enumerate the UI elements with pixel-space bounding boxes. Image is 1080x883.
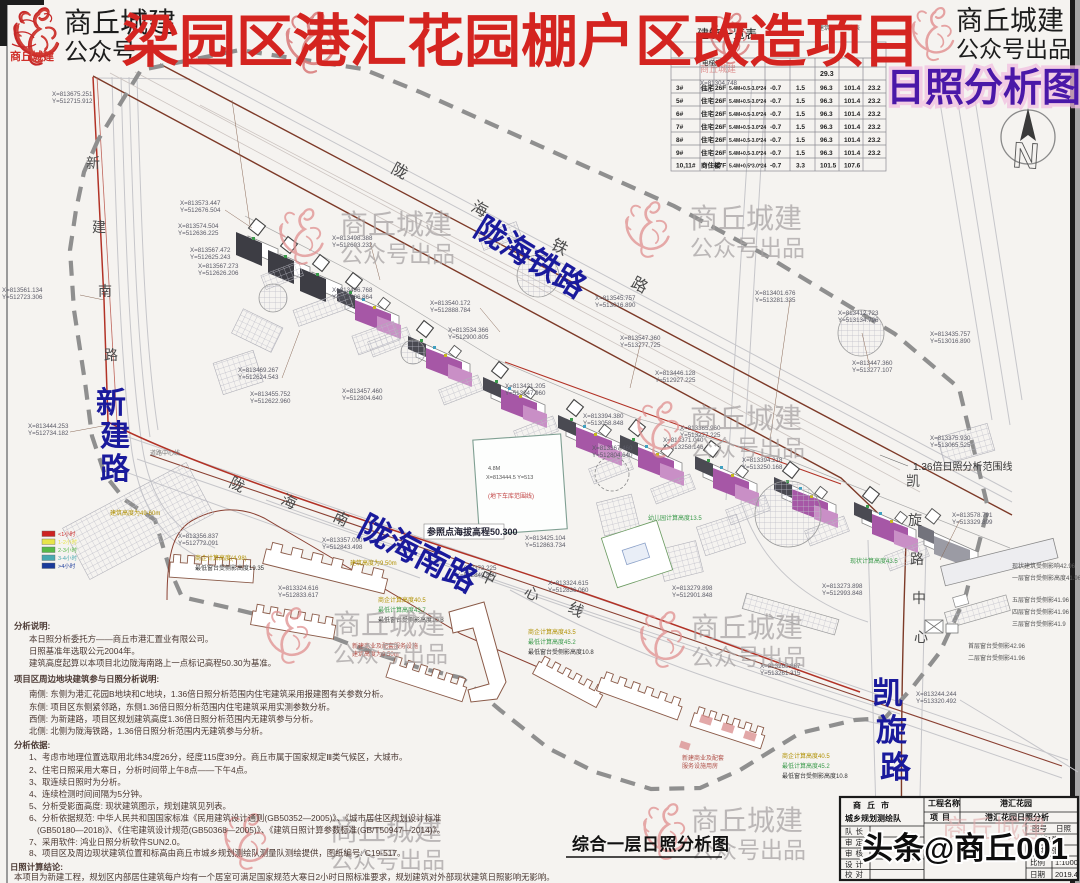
svg-text:校对: 校对 bbox=[845, 869, 866, 879]
svg-text:商丘城建: 商丘城建 bbox=[691, 612, 803, 643]
svg-text:2、住宅日照采用大寒日，分析时间带上午8点——下午4点。: 2、住宅日照采用大寒日，分析时间带上午8点——下午4点。 bbox=[29, 765, 252, 775]
svg-text:城乡规划测绘队: 城乡规划测绘队 bbox=[845, 813, 902, 823]
svg-text:-0.7: -0.7 bbox=[770, 150, 782, 157]
svg-text:5.4M+0.5-3.0*24: 5.4M+0.5-3.0*24 bbox=[729, 151, 766, 157]
svg-text:分析依据:: 分析依据: bbox=[14, 740, 50, 750]
svg-text:3-4小时: 3-4小时 bbox=[58, 554, 77, 562]
svg-text:心: 心 bbox=[521, 583, 542, 605]
svg-text:住宅: 住宅 bbox=[701, 96, 715, 105]
svg-text:26F: 26F bbox=[715, 150, 726, 157]
svg-text:9#: 9# bbox=[676, 150, 684, 157]
svg-text:路: 路 bbox=[628, 274, 651, 297]
svg-text:(GB50180—2018)》、《住宅建筑设计规范(GB50: (GB50180—2018)》、《住宅建筑设计规范(GB50368—2005)》… bbox=[37, 825, 445, 835]
svg-text:101.4: 101.4 bbox=[844, 124, 861, 131]
svg-text:公众号出品: 公众号出品 bbox=[333, 641, 448, 667]
svg-text:-0.7: -0.7 bbox=[770, 85, 782, 92]
svg-text:101.4: 101.4 bbox=[844, 111, 861, 118]
svg-text:27F: 27F bbox=[715, 163, 726, 170]
svg-text:26F: 26F bbox=[715, 137, 726, 144]
svg-text:公众号出品: 公众号出品 bbox=[690, 235, 805, 261]
svg-text:96.3: 96.3 bbox=[820, 98, 833, 105]
svg-text:商丘城建: 商丘城建 bbox=[333, 609, 445, 640]
svg-text:26F: 26F bbox=[715, 111, 726, 118]
svg-text:>4小时: >4小时 bbox=[58, 562, 76, 570]
svg-text:10,11#: 10,11# bbox=[676, 163, 696, 170]
svg-text:23.2: 23.2 bbox=[868, 85, 881, 92]
svg-text:商丘城建: 商丘城建 bbox=[690, 403, 802, 434]
svg-text:26F: 26F bbox=[715, 85, 726, 92]
svg-text:陇海南路: 陇海南路 bbox=[353, 508, 484, 599]
svg-text:96.3: 96.3 bbox=[820, 111, 833, 118]
svg-text:路: 路 bbox=[104, 347, 118, 363]
svg-text:新: 新 bbox=[86, 155, 100, 171]
svg-text:96.3: 96.3 bbox=[820, 137, 833, 144]
svg-text:海: 海 bbox=[278, 491, 299, 513]
svg-text:5、分析受影面高度: 现状建筑图示，规划建筑见列表。: 5、分析受影面高度: 现状建筑图示，规划建筑见列表。 bbox=[29, 801, 231, 811]
svg-text:-0.7: -0.7 bbox=[770, 98, 782, 105]
svg-text:日期: 日期 bbox=[1030, 870, 1045, 879]
svg-text:-0.7: -0.7 bbox=[770, 111, 782, 118]
svg-text:日照分析图: 日照分析图 bbox=[886, 67, 1080, 110]
svg-text:凯: 凯 bbox=[906, 473, 920, 489]
svg-text:公众号出品: 公众号出品 bbox=[340, 241, 455, 267]
svg-text:商丘城建: 商丘城建 bbox=[690, 203, 802, 234]
svg-text:建: 建 bbox=[92, 219, 106, 235]
svg-text:1.5: 1.5 bbox=[796, 85, 805, 92]
svg-text:5.4M+0.5-3.0*24: 5.4M+0.5-3.0*24 bbox=[729, 99, 766, 105]
svg-text:<1小时: <1小时 bbox=[58, 530, 76, 538]
svg-text:商丘市: 商丘市 bbox=[853, 800, 895, 810]
svg-text:住宅: 住宅 bbox=[701, 148, 715, 157]
svg-text:路: 路 bbox=[880, 750, 912, 785]
svg-text:1、考虑市地理位置选取用北纬34度26分，经度115度39分: 1、考虑市地理位置选取用北纬34度26分，经度115度39分。商丘市属于国家规定… bbox=[29, 752, 407, 762]
svg-text:工程名称: 工程名称 bbox=[928, 798, 960, 808]
svg-text:107.6: 107.6 bbox=[844, 163, 861, 170]
svg-text:5.4M+0.5-3.0*24: 5.4M+0.5-3.0*24 bbox=[729, 125, 766, 131]
svg-text:1.5: 1.5 bbox=[796, 98, 805, 105]
svg-text:新: 新 bbox=[96, 387, 126, 420]
svg-text:本项目为新建工程，规划区内部居住建筑每户均有一个居室可满足国: 本项目为新建工程，规划区内部居住建筑每户均有一个居室可满足国家规范大寒日2小时日… bbox=[14, 872, 555, 882]
svg-text:陇海铁路: 陇海铁路 bbox=[468, 210, 593, 305]
svg-text:南侧: 东侧为港汇花园B地块和C地块，1.36倍日照分析范围: 南侧: 东侧为港汇花园B地块和C地块，1.36倍日照分析范围内住宅建筑采用报建图… bbox=[29, 689, 388, 699]
svg-text:1.5: 1.5 bbox=[796, 111, 805, 118]
svg-text:5.4M+0.5*3.0*24: 5.4M+0.5*3.0*24 bbox=[729, 164, 767, 170]
svg-text:公众号出品: 公众号出品 bbox=[691, 644, 806, 670]
svg-text:1-2小时: 1-2小时 bbox=[58, 538, 77, 546]
svg-text:6、分析依据规范: 中华人民共和国国家标准《民用建筑设计通则: 6、分析依据规范: 中华人民共和国国家标准《民用建筑设计通则(GB50352—2… bbox=[29, 813, 441, 823]
svg-text:住宅: 住宅 bbox=[701, 109, 715, 118]
svg-text:101.4: 101.4 bbox=[844, 137, 861, 144]
svg-text:3.3: 3.3 bbox=[796, 163, 805, 170]
svg-text:住宅: 住宅 bbox=[701, 83, 715, 92]
svg-text:26F: 26F bbox=[715, 124, 726, 131]
svg-text:-0.7: -0.7 bbox=[770, 124, 782, 131]
svg-text:96.3: 96.3 bbox=[820, 85, 833, 92]
svg-text:旋: 旋 bbox=[876, 713, 907, 748]
svg-text:综合一层日照分析图: 综合一层日照分析图 bbox=[572, 834, 730, 854]
svg-text:6#: 6# bbox=[676, 111, 684, 118]
svg-text:北侧: 北侧为陇海铁路，1.36倍日照分析范围内无建筑参与分: 北侧: 北侧为陇海铁路，1.36倍日照分析范围内无建筑参与分析。 bbox=[29, 726, 268, 736]
svg-text:1.5: 1.5 bbox=[796, 150, 805, 157]
svg-text:1.5: 1.5 bbox=[796, 137, 805, 144]
svg-text:住宅: 住宅 bbox=[701, 122, 715, 131]
svg-text:23.2: 23.2 bbox=[868, 111, 881, 118]
svg-text:头条@商丘001: 头条@商丘001 bbox=[862, 831, 1068, 866]
svg-text:5.4M+0.5-3.0*24: 5.4M+0.5-3.0*24 bbox=[729, 138, 766, 144]
svg-text:商丘城建: 商丘城建 bbox=[10, 49, 55, 63]
svg-text:分析说明:: 分析说明: bbox=[14, 621, 50, 631]
svg-text:项目区周边地块建筑参与日照分析说明:: 项目区周边地块建筑参与日照分析说明: bbox=[14, 674, 159, 684]
svg-text:日照基准年选取公元2004年。: 日照基准年选取公元2004年。 bbox=[29, 646, 140, 656]
svg-text:23.2: 23.2 bbox=[868, 137, 881, 144]
svg-text:路: 路 bbox=[100, 453, 131, 486]
svg-text:3、取连续日照时为分析。: 3、取连续日照时为分析。 bbox=[29, 777, 126, 787]
svg-text:5.4M+0.5-3.0*24: 5.4M+0.5-3.0*24 bbox=[729, 112, 766, 118]
svg-text:7#: 7# bbox=[676, 124, 684, 131]
svg-text:101.5: 101.5 bbox=[820, 163, 837, 170]
svg-text:商丘城建: 商丘城建 bbox=[340, 209, 452, 240]
svg-text:2-3小时: 2-3小时 bbox=[58, 546, 77, 554]
svg-text:心: 心 bbox=[914, 629, 928, 645]
svg-text:1.5: 1.5 bbox=[796, 124, 805, 131]
svg-text:住宅: 住宅 bbox=[701, 135, 715, 144]
svg-text:梁园区港汇花园棚户区改造项目: 梁园区港汇花园棚户区改造项目 bbox=[122, 10, 920, 74]
svg-text:23.2: 23.2 bbox=[868, 98, 881, 105]
svg-text:南: 南 bbox=[330, 508, 351, 530]
svg-text:101.4: 101.4 bbox=[844, 98, 861, 105]
svg-text:陇: 陇 bbox=[226, 474, 247, 496]
svg-text:本日照分析委托方——商丘市港汇置业有限公司。: 本日照分析委托方——商丘市港汇置业有限公司。 bbox=[29, 634, 213, 644]
svg-text:中: 中 bbox=[912, 590, 926, 606]
svg-text:陇: 陇 bbox=[388, 160, 411, 183]
svg-text:港汇花园: 港汇花园 bbox=[1000, 798, 1032, 808]
svg-text:2019.4: 2019.4 bbox=[1055, 870, 1078, 879]
svg-text:参照点海拔高程50.300: 参照点海拔高程50.300 bbox=[427, 526, 518, 537]
svg-text:商丘城建: 商丘城建 bbox=[956, 6, 1064, 36]
svg-text:建筑高度起算以本项目北边陇海南路上一点标记高程50.30为基: 建筑高度起算以本项目北边陇海南路上一点标记高程50.30为基准。 bbox=[29, 658, 276, 668]
svg-text:西侧: 为新建路，项目区规划建筑高度1.36倍日照分析范围内: 西侧: 为新建路，项目区规划建筑高度1.36倍日照分析范围内无建筑参与分析。 bbox=[29, 714, 318, 724]
svg-text:-0.7: -0.7 bbox=[770, 137, 782, 144]
svg-text:建: 建 bbox=[100, 420, 130, 453]
svg-text:旋: 旋 bbox=[908, 512, 922, 528]
svg-text:5#: 5# bbox=[676, 98, 684, 105]
svg-text:商丘城建: 商丘城建 bbox=[691, 805, 803, 836]
svg-text:N: N bbox=[1012, 134, 1041, 177]
svg-text:7、采用软件: 鸿业日照分析软件SUN2.0。: 7、采用软件: 鸿业日照分析软件SUN2.0。 bbox=[29, 837, 185, 847]
svg-text:96.3: 96.3 bbox=[820, 150, 833, 157]
svg-text:凯: 凯 bbox=[872, 676, 903, 711]
svg-text:日照计算结论:: 日照计算结论: bbox=[10, 862, 63, 872]
svg-text:3#: 3# bbox=[676, 85, 684, 92]
svg-text:公众号出品: 公众号出品 bbox=[690, 435, 805, 461]
svg-text:8、项目区及周边现状建筑位置和标高由商丘市城乡规划测绘队测量: 8、项目区及周边现状建筑位置和标高由商丘市城乡规划测绘队测量队测绘提供，图纸编号… bbox=[29, 848, 405, 858]
svg-text:101.4: 101.4 bbox=[844, 150, 861, 157]
svg-text:23.2: 23.2 bbox=[868, 124, 881, 131]
svg-text:南: 南 bbox=[98, 283, 112, 299]
svg-text:4、连续检测时间间隔为5分钟。: 4、连续检测时间间隔为5分钟。 bbox=[29, 789, 147, 799]
svg-text:路: 路 bbox=[910, 551, 924, 567]
svg-text:-0.7: -0.7 bbox=[770, 163, 782, 170]
svg-text:线: 线 bbox=[565, 599, 586, 621]
svg-text:1.36倍日照分析范围线: 1.36倍日照分析范围线 bbox=[913, 460, 1012, 473]
svg-text:96.3: 96.3 bbox=[820, 124, 833, 131]
svg-text:公众号出品: 公众号出品 bbox=[956, 36, 1071, 62]
svg-text:23.2: 23.2 bbox=[868, 150, 881, 157]
svg-text:26F: 26F bbox=[715, 98, 726, 105]
svg-text:东侧: 项目区东侧紧邻路，东侧1.36倍日照分析范围内住宅建: 东侧: 项目区东侧紧邻路，东侧1.36倍日照分析范围内住宅建筑采用实测参数分析。 bbox=[29, 702, 335, 712]
svg-text:8#: 8# bbox=[676, 137, 684, 144]
svg-text:101.4: 101.4 bbox=[844, 85, 861, 92]
svg-text:5.4M+0.5-3.0*24: 5.4M+0.5-3.0*24 bbox=[729, 86, 766, 92]
